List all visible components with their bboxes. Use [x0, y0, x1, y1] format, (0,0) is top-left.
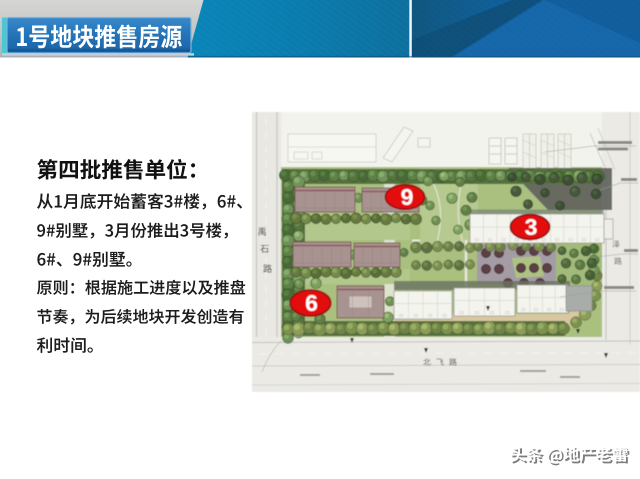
svg-text:9: 9: [401, 184, 414, 210]
svg-text:6: 6: [305, 290, 318, 316]
svg-text:3: 3: [525, 214, 538, 240]
